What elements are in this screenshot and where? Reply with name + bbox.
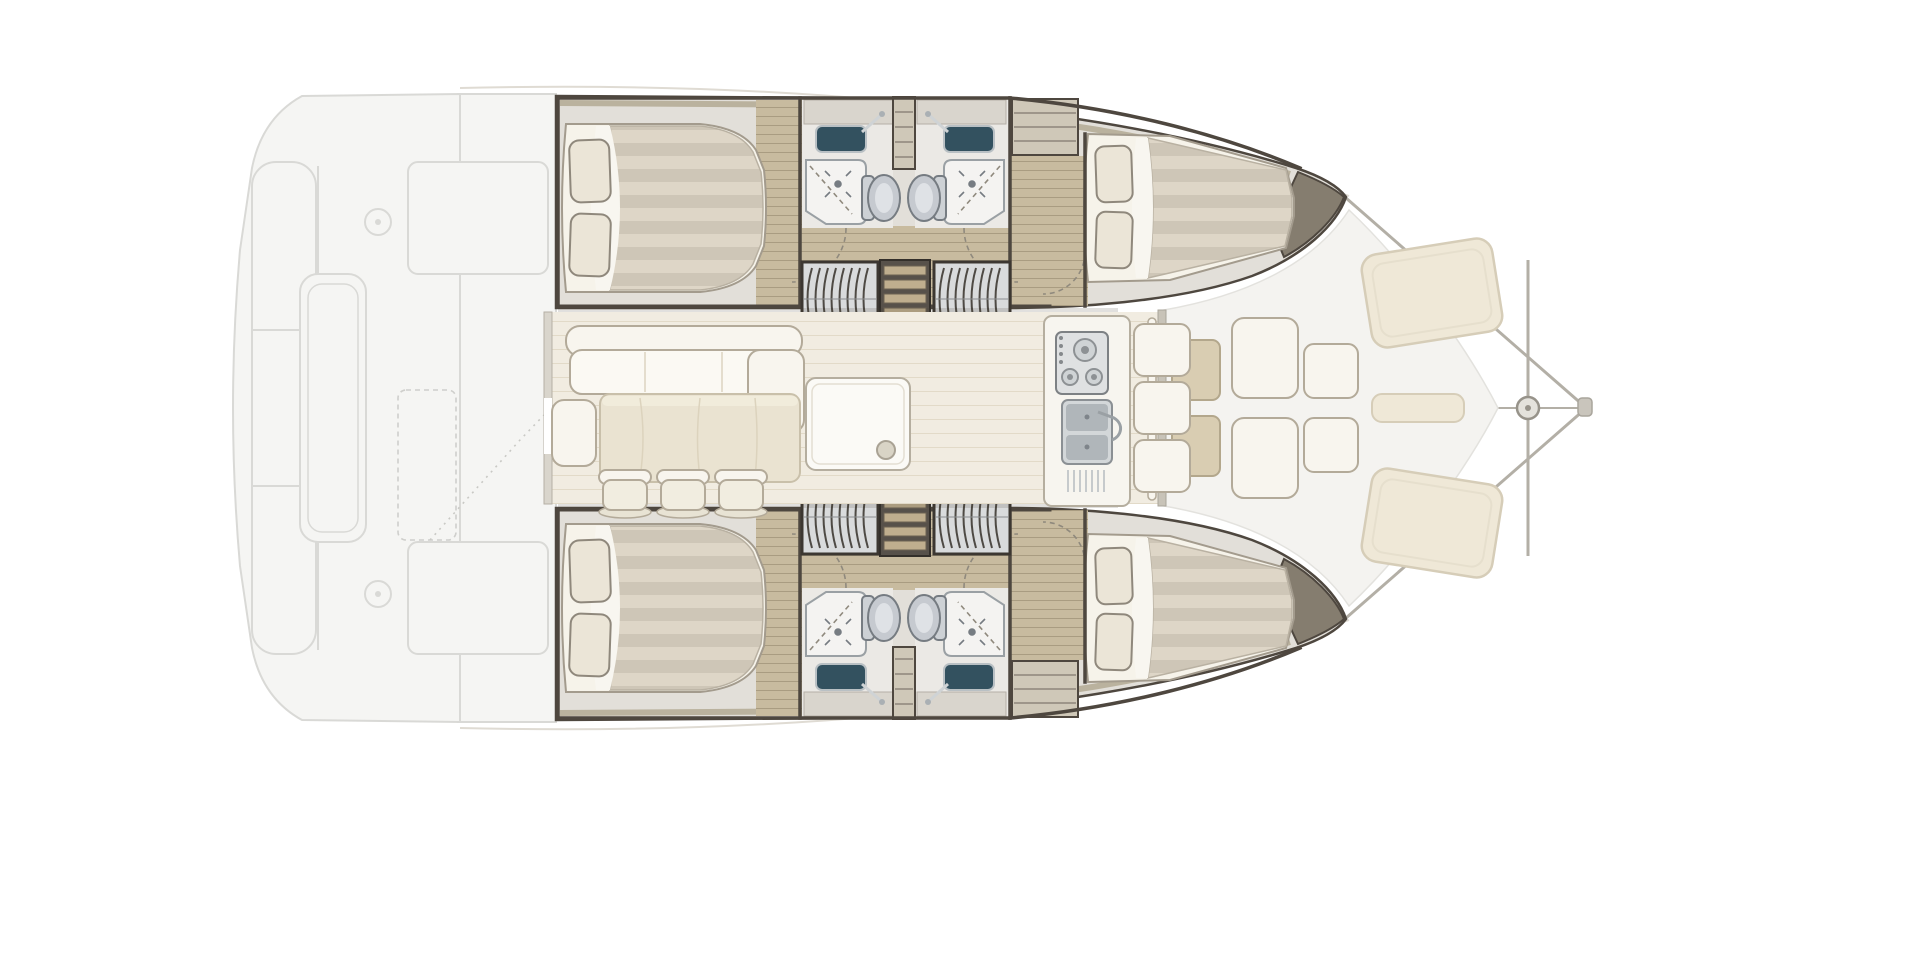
bench-cushion [1304,344,1358,398]
galley-sink [1062,400,1121,464]
dining-table [600,394,800,482]
bench-cushion [1232,318,1298,398]
bench-cushion [1232,418,1298,498]
galley-stove [1056,332,1108,394]
stool [715,470,767,518]
center-pad-strip [1372,394,1464,422]
catamaran-floor-plan [0,0,1920,960]
galley [1044,316,1130,506]
side-seat [552,400,596,466]
cockpit-table [300,274,366,542]
sun-pad [1359,236,1504,349]
storage-cabinet [806,378,910,470]
cabinet-handle [877,441,895,459]
floor-plan-stage [0,0,1920,960]
aft-cockpit [233,94,556,722]
dining-stools [599,470,767,518]
bench-cushion [1304,418,1358,472]
sun-pad [1359,466,1504,579]
salon [544,310,1190,518]
salon-forward-bench [1134,318,1190,500]
bowsprit-fitting [1578,398,1592,416]
dish-rack [1068,470,1104,492]
deck-hatch [408,542,548,654]
salon-aft-door-opening [544,398,552,454]
stool [599,470,651,518]
stool [657,470,709,518]
deck-hatch [408,162,548,274]
